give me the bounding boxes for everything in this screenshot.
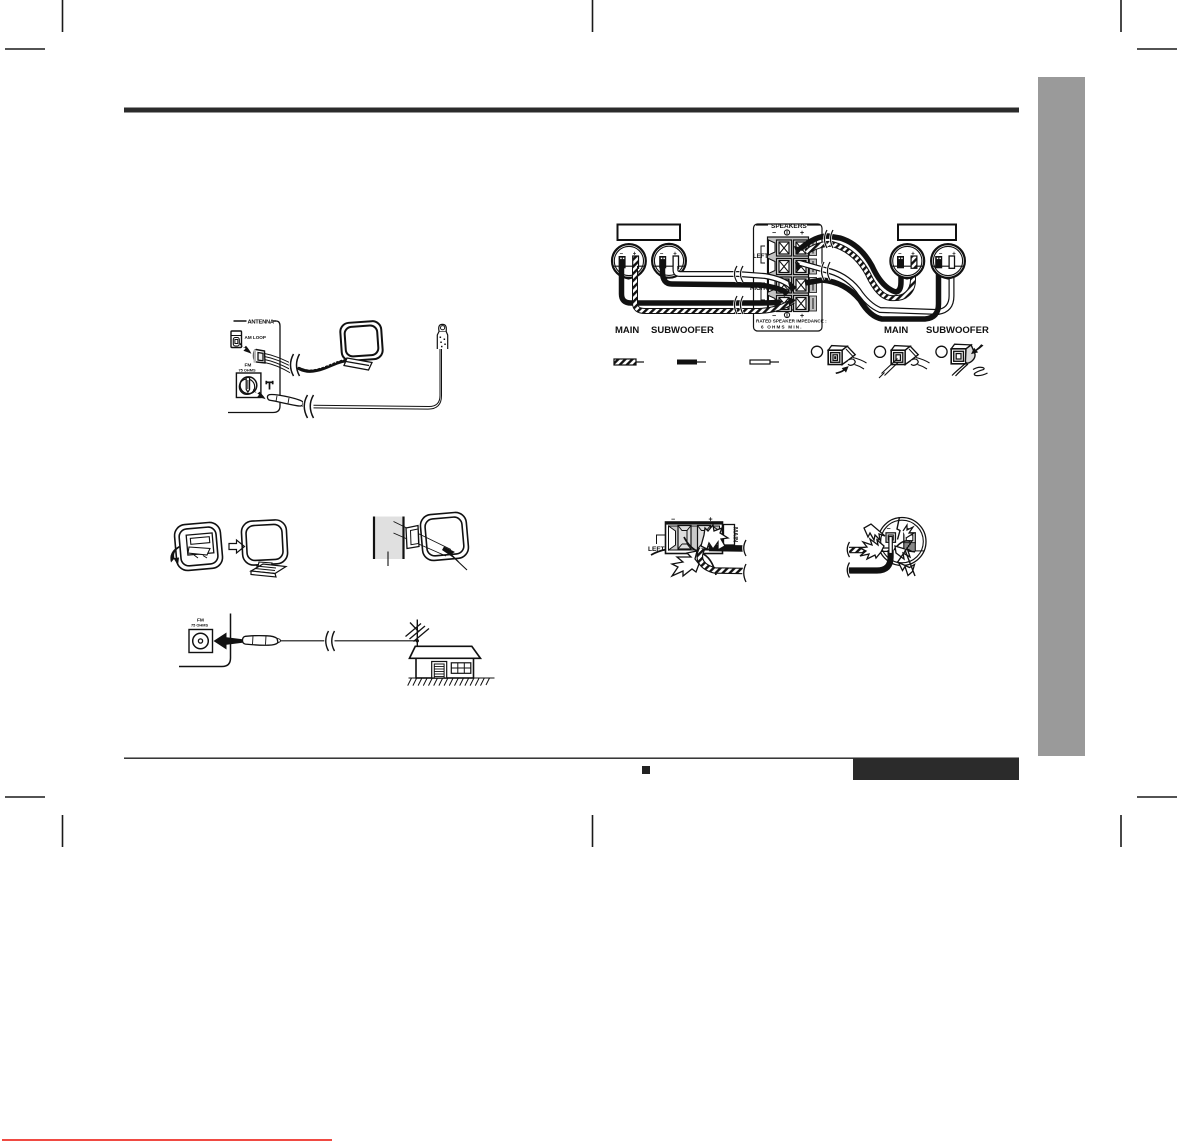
svg-text:MAIN: MAIN	[732, 527, 738, 542]
svg-text:−: −	[772, 230, 776, 237]
svg-text:75 OHMS: 75 OHMS	[191, 623, 208, 628]
svg-text:MAIN: MAIN	[615, 325, 639, 336]
svg-text:RATED SPEAKER IMPEDANCE :: RATED SPEAKER IMPEDANCE :	[756, 319, 827, 324]
svg-text:SUBWOOFER: SUBWOOFER	[926, 325, 989, 336]
svg-text:75 OHMS: 75 OHMS	[239, 368, 256, 373]
svg-text:AM LOOP: AM LOOP	[245, 335, 266, 340]
svg-text:−: −	[887, 526, 891, 533]
svg-text:SPEAKERS: SPEAKERS	[771, 223, 807, 230]
svg-text:SUBWOOFER: SUBWOOFER	[651, 325, 714, 336]
svg-text:ANTENNA: ANTENNA	[248, 319, 275, 325]
svg-text:6 OHMS MIN.: 6 OHMS MIN.	[761, 325, 803, 330]
svg-text:MAIN: MAIN	[884, 325, 908, 336]
svg-text:+: +	[800, 230, 804, 237]
